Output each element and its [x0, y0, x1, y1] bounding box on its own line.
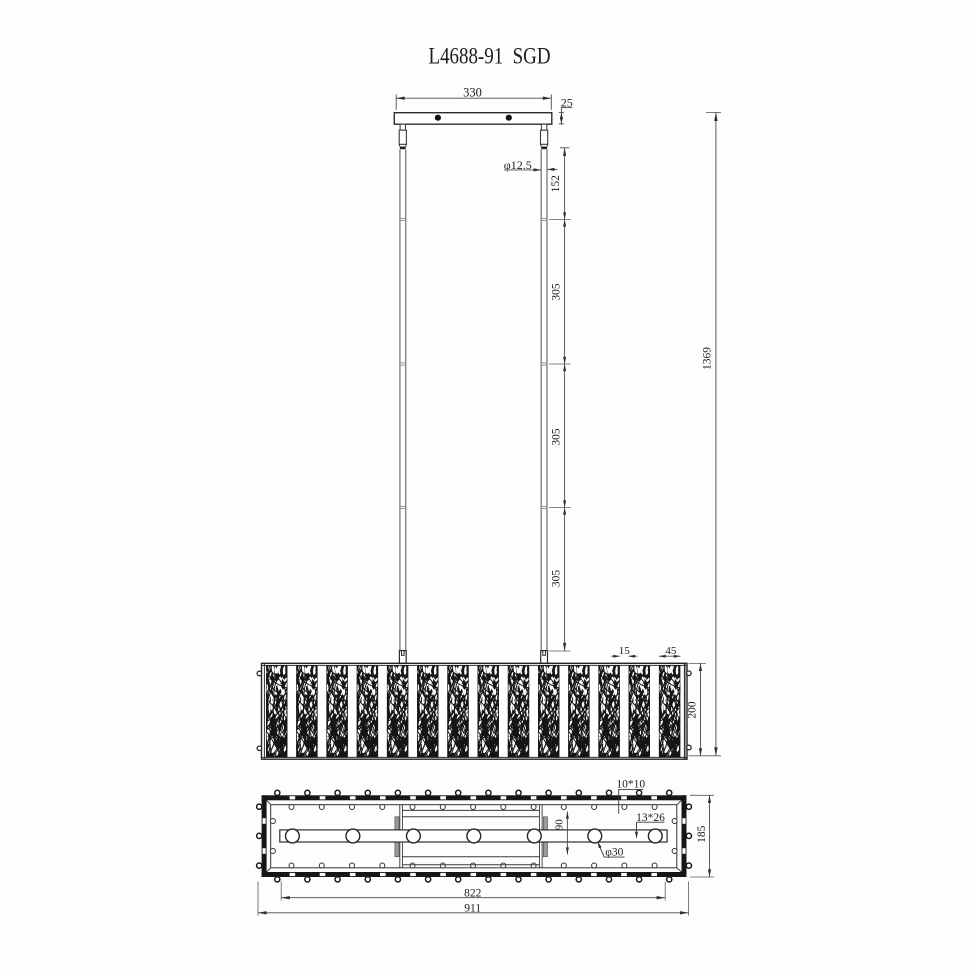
svg-text:185: 185 [696, 825, 708, 843]
svg-text:45: 45 [665, 645, 677, 657]
svg-text:L4688-91 SGD: L4688-91 SGD [429, 44, 551, 69]
svg-text:305: 305 [551, 428, 563, 446]
svg-text:911: 911 [464, 902, 481, 914]
svg-text:822: 822 [464, 887, 482, 899]
svg-text:1369: 1369 [702, 347, 714, 370]
svg-text:10*10: 10*10 [616, 779, 645, 791]
svg-text:152: 152 [550, 175, 562, 193]
svg-text:305: 305 [551, 570, 563, 588]
svg-text:15: 15 [619, 645, 631, 657]
svg-text:200: 200 [687, 701, 699, 719]
svg-text:305: 305 [551, 283, 563, 301]
svg-text:330: 330 [463, 86, 482, 100]
svg-text:90: 90 [554, 819, 566, 831]
